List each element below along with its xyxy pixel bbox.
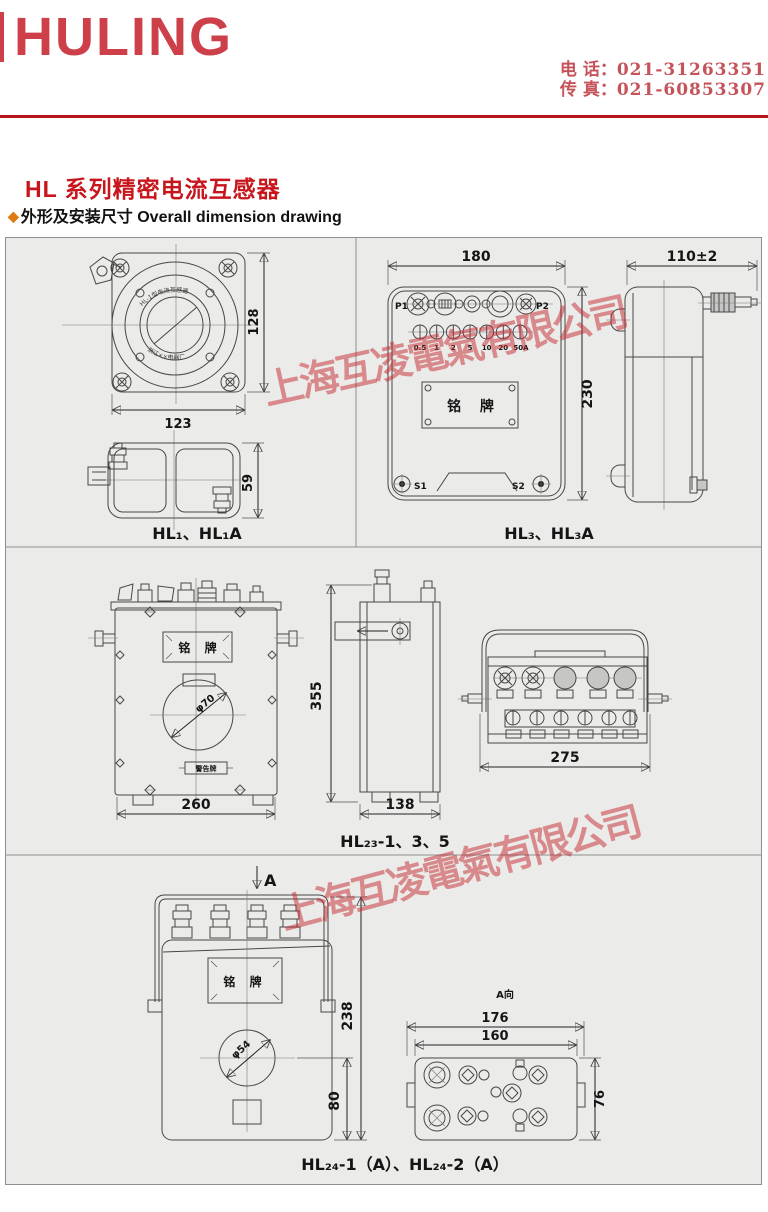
hl24-caption: HL₂₄-1（A）、HL₂₄-2（A） [301, 1155, 509, 1174]
fax-label: 传 真： [560, 80, 617, 100]
page-title: HL 系列精密电流互感器 [25, 170, 281, 204]
hl24-top-outer-dim: 176 [481, 1011, 508, 1026]
hl23-caption: HL₂₃-1、3、5 [340, 832, 450, 851]
hl24-view-arrow-label: A [264, 871, 277, 890]
hl1-caption: HL₁、HL₁A [152, 524, 242, 543]
header-divider-rule [0, 115, 768, 118]
catalog-page: HULING 电 话：021-31263351 传 真：021-60853307… [0, 0, 768, 1212]
hl24-hole-offset-dim: 80 [327, 1091, 343, 1111]
company-logo: HULING [14, 6, 233, 68]
hl3-s1-label: S1 [414, 482, 427, 492]
subtitle-text: 外形及安装尺寸 Overall dimension drawing [21, 209, 342, 226]
phone-line: 电 话：021-31263351 [560, 60, 766, 80]
hl1-height-dim: 128 [247, 308, 262, 335]
svg-text:铭 牌: 铭 牌 [178, 640, 221, 655]
hl23-height-dim: 355 [309, 681, 325, 710]
hl3-height-dim: 230 [580, 379, 596, 408]
contact-block: 电 话：021-31263351 传 真：021-60853307 [560, 60, 766, 100]
phone-label: 电 话： [560, 60, 617, 80]
hl1-side-height-dim: 59 [241, 474, 256, 492]
hl23-depth-dim: 138 [385, 797, 414, 813]
hl3-s2-label: S2 [512, 482, 525, 492]
svg-text:警告牌: 警告牌 [196, 764, 217, 773]
hl23-top-width-dim: 275 [550, 750, 579, 766]
hl1-width-dim: 123 [164, 417, 191, 432]
diamond-bullet-icon: ◆ [8, 208, 19, 224]
phone-number: 021-31263351 [617, 60, 766, 80]
section-subtitle: ◆外形及安装尺寸 Overall dimension drawing [8, 203, 342, 227]
hl3-width-dim: 180 [461, 249, 490, 265]
fax-line: 传 真：021-60853307 [560, 80, 766, 100]
hl24-height-dim: 238 [340, 1001, 356, 1030]
hl3-p1-label: P1 [395, 302, 408, 312]
logo-accent-bar [0, 12, 4, 62]
fax-number: 021-60853307 [617, 80, 766, 100]
hl3-depth-dim: 110±2 [667, 249, 718, 265]
hl24-view-label: A向 [496, 988, 514, 1001]
svg-text:铭 牌: 铭 牌 [223, 974, 266, 989]
hl24-top-height-dim: 76 [593, 1090, 608, 1108]
hl24-top-inner-dim: 160 [481, 1029, 508, 1044]
hl23-width-dim: 260 [181, 797, 210, 813]
svg-text:铭 牌: 铭 牌 [447, 398, 501, 415]
hl3-caption: HL₃、HL₃A [504, 524, 594, 543]
